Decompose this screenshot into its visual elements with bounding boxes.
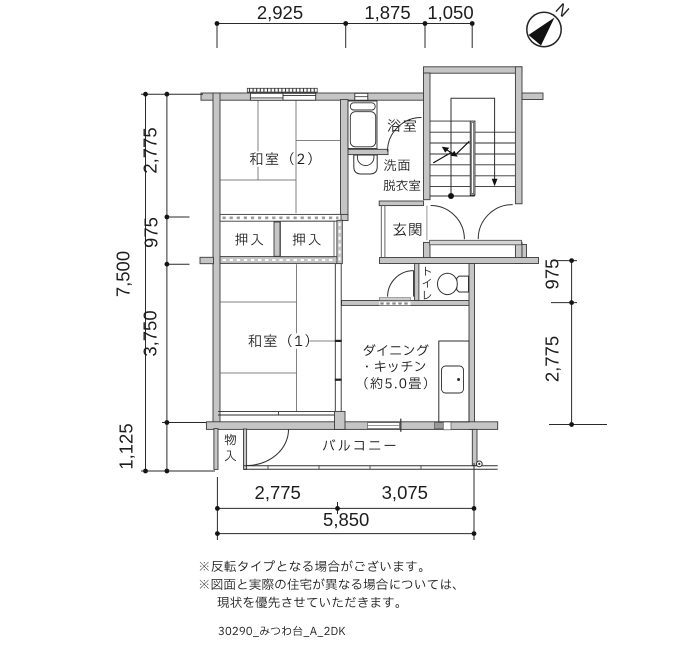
svg-text:975: 975 <box>542 259 563 290</box>
svg-text:1,125: 1,125 <box>116 423 137 469</box>
svg-text:2,775: 2,775 <box>542 336 563 382</box>
svg-text:3,075: 3,075 <box>382 482 428 503</box>
svg-text:1,050: 1,050 <box>427 2 473 23</box>
svg-text:1,875: 1,875 <box>364 2 410 23</box>
svg-text:7,500: 7,500 <box>113 251 134 297</box>
svg-text:3,750: 3,750 <box>140 310 161 356</box>
svg-text:975: 975 <box>141 217 162 248</box>
svg-text:2,775: 2,775 <box>255 482 301 503</box>
svg-text:2,775: 2,775 <box>140 127 161 173</box>
svg-text:2,925: 2,925 <box>257 2 303 23</box>
svg-text:5,850: 5,850 <box>323 509 369 530</box>
